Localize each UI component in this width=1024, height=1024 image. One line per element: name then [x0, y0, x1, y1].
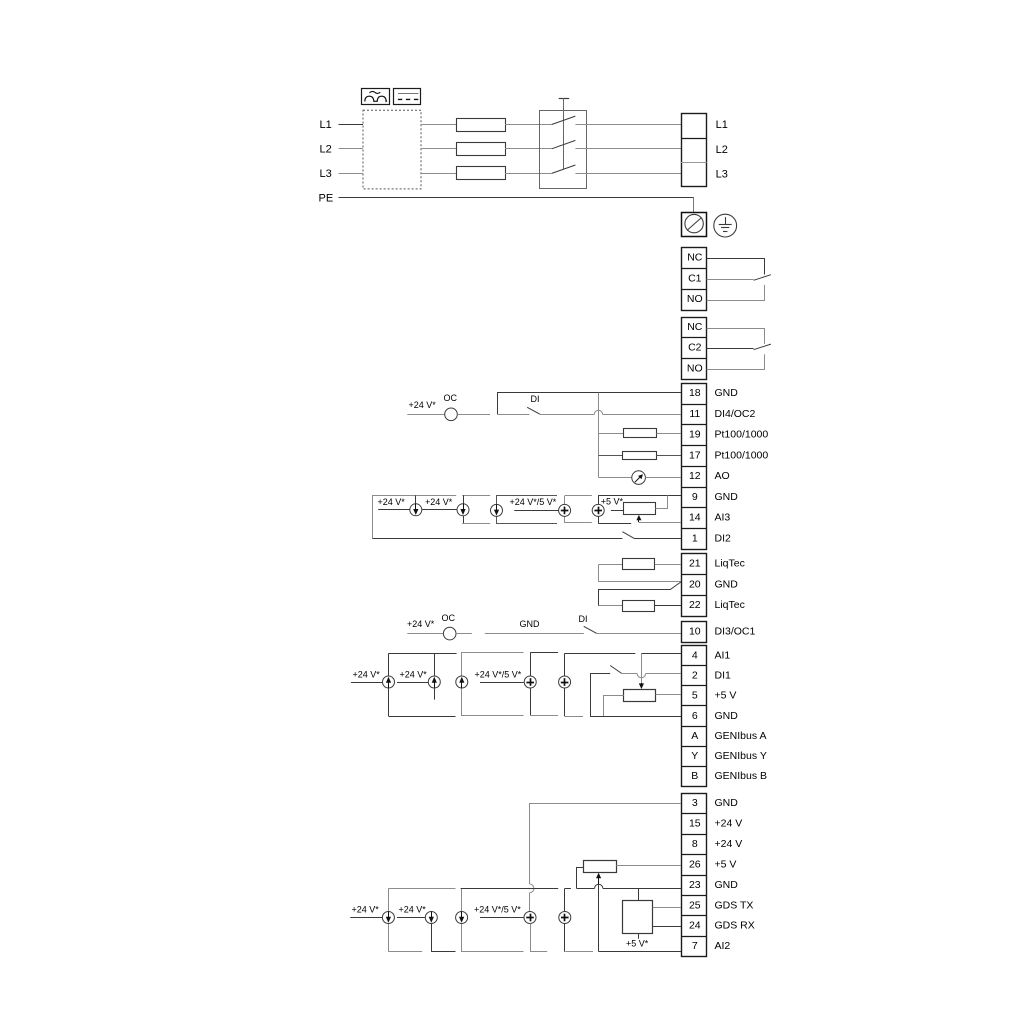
svg-text:2: 2	[692, 670, 698, 682]
svg-text:+24 V*: +24 V*	[407, 619, 435, 629]
svg-text:6: 6	[692, 710, 698, 722]
svg-text:+24 V: +24 V	[715, 838, 743, 850]
svg-text:B: B	[691, 770, 698, 782]
svg-text:1: 1	[692, 532, 698, 544]
svg-text:GND: GND	[715, 710, 739, 722]
svg-text:+24 V*: +24 V*	[352, 905, 380, 915]
svg-text:Pt100/1000: Pt100/1000	[715, 449, 769, 461]
svg-text:+5 V: +5 V	[715, 858, 737, 870]
svg-text:+5 V: +5 V	[715, 690, 737, 702]
svg-text:NO: NO	[687, 293, 703, 305]
svg-text:21: 21	[689, 558, 701, 570]
svg-text:DI3/OC1: DI3/OC1	[715, 626, 756, 638]
svg-text:14: 14	[689, 512, 701, 524]
svg-text:+5 V*: +5 V*	[601, 497, 624, 507]
svg-text:OC: OC	[442, 613, 456, 623]
svg-text:AI2: AI2	[715, 940, 731, 952]
svg-text:+5 V*: +5 V*	[626, 939, 649, 949]
svg-text:NC: NC	[687, 321, 703, 333]
svg-text:+24 V: +24 V	[715, 818, 743, 830]
svg-text:25: 25	[689, 899, 701, 911]
svg-text:LiqTec: LiqTec	[715, 558, 745, 570]
svg-text:GENIbus A: GENIbus A	[715, 730, 767, 742]
svg-text:NO: NO	[687, 362, 703, 374]
svg-text:PE: PE	[319, 193, 334, 205]
svg-text:24: 24	[689, 920, 701, 932]
svg-text:GND: GND	[715, 797, 739, 809]
svg-text:18: 18	[689, 387, 701, 399]
svg-text:9: 9	[692, 491, 698, 503]
svg-text:5: 5	[692, 690, 698, 702]
svg-text:23: 23	[689, 879, 701, 891]
svg-text:C1: C1	[688, 272, 702, 284]
svg-text:DI2: DI2	[715, 532, 732, 544]
svg-text:DI4/OC2: DI4/OC2	[715, 408, 756, 420]
svg-text:17: 17	[689, 449, 701, 461]
svg-text:4: 4	[692, 650, 698, 662]
svg-text:GDS RX: GDS RX	[715, 920, 755, 932]
svg-text:GND: GND	[715, 578, 739, 590]
svg-text:L2: L2	[320, 144, 332, 156]
svg-text:22: 22	[689, 599, 701, 611]
svg-text:11: 11	[689, 408, 700, 420]
svg-text:+24 V*: +24 V*	[399, 905, 427, 915]
svg-text:+24 V*/5 V*: +24 V*/5 V*	[474, 905, 521, 915]
svg-text:DI: DI	[579, 614, 588, 624]
svg-text:+24 V*: +24 V*	[425, 497, 453, 507]
svg-text:+24 V*: +24 V*	[409, 400, 437, 410]
svg-text:DI: DI	[531, 394, 540, 404]
svg-text:L3: L3	[320, 168, 332, 180]
svg-text:DI1: DI1	[715, 670, 732, 682]
svg-text:Y: Y	[691, 750, 698, 762]
svg-text:GENIbus B: GENIbus B	[715, 770, 768, 782]
svg-text:3: 3	[692, 797, 698, 809]
svg-text:10: 10	[689, 626, 701, 638]
svg-text:12: 12	[689, 470, 701, 482]
svg-text:A: A	[691, 730, 698, 742]
svg-text:Pt100/1000: Pt100/1000	[715, 429, 769, 441]
svg-text:LiqTec: LiqTec	[715, 599, 745, 611]
svg-text:19: 19	[689, 429, 701, 441]
svg-text:GND: GND	[715, 879, 739, 891]
svg-text:8: 8	[692, 838, 698, 850]
svg-text:20: 20	[689, 578, 701, 590]
svg-text:L2: L2	[716, 144, 728, 156]
svg-text:+24 V*/5 V*: +24 V*/5 V*	[510, 497, 557, 507]
svg-text:L1: L1	[716, 119, 728, 131]
svg-text:OC: OC	[444, 393, 458, 403]
svg-text:+24 V*: +24 V*	[400, 670, 428, 680]
svg-text:GND: GND	[715, 491, 739, 503]
svg-text:L1: L1	[320, 119, 332, 131]
svg-text:AI1: AI1	[715, 650, 731, 662]
svg-text:L3: L3	[716, 168, 728, 180]
svg-text:GND: GND	[715, 387, 739, 399]
svg-text:+24 V*/5 V*: +24 V*/5 V*	[475, 670, 522, 680]
svg-text:AO: AO	[715, 470, 730, 482]
svg-text:GND: GND	[520, 619, 541, 629]
svg-text:AI3: AI3	[715, 512, 731, 524]
svg-text:GDS TX: GDS TX	[715, 899, 754, 911]
svg-text:+24 V*: +24 V*	[378, 497, 406, 507]
svg-text:26: 26	[689, 858, 701, 870]
svg-text:15: 15	[689, 818, 701, 830]
svg-text:NC: NC	[687, 252, 703, 264]
svg-text:+24 V*: +24 V*	[353, 670, 381, 680]
svg-text:GENIbus Y: GENIbus Y	[715, 750, 767, 762]
svg-text:7: 7	[692, 940, 698, 952]
svg-text:C2: C2	[688, 342, 702, 354]
